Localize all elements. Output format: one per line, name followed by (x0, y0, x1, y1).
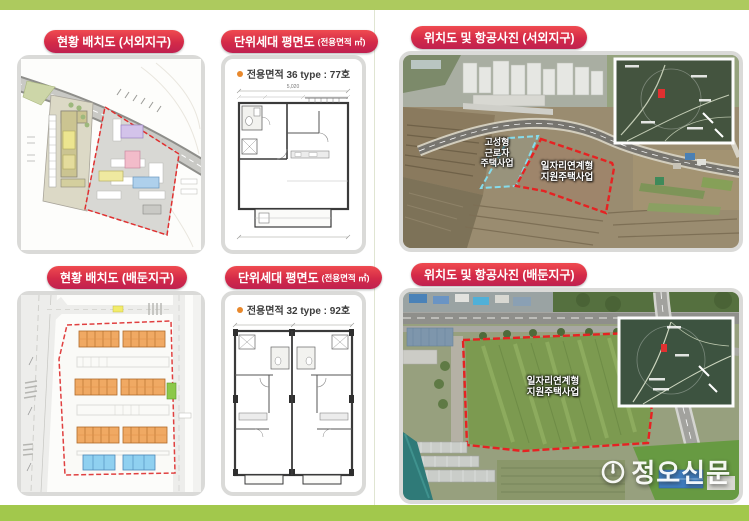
floor-plan-32-caption-row: 전용면적 32 type : 92호 (225, 302, 362, 317)
floor-plan-drawing-36: 5,020 (225, 81, 362, 247)
label-job-housing-baedun: 일자리연계형 지원주택사업 (505, 376, 601, 398)
badge-aerial-seooe: 위치도 및 항공사진 (서외지구) (411, 26, 587, 49)
site-plan-drawing-baedun (21, 295, 201, 492)
dimension-label: 5,020 (287, 84, 300, 90)
badge-unit-plan-top: 단위세대 평면도 (전용면적 ㎡) (221, 30, 378, 53)
watermark: 정오신문 (600, 453, 731, 490)
badge-label: 위치도 및 항공사진 (서외지구) (424, 29, 574, 46)
aerial-photo-seooe: 고성형 근로자 주택사업 일자리연계형 지원주택사업 (403, 55, 739, 248)
label-job-housing-seooe: 일자리연계형 지원주택사업 (519, 161, 615, 183)
badge-label: 현황 배치도 (서외지구) (57, 33, 171, 50)
bullet-icon (237, 307, 243, 313)
badge-unit-plan-bottom: 단위세대 평면도 (전용면적 ㎡) (225, 266, 382, 289)
badge-sublabel: (전용면적 ㎡) (318, 36, 366, 48)
panel-aerial-baedun: 일자리연계형 지원주택사업 정오신문 (399, 288, 743, 504)
top-green-band (0, 0, 749, 10)
brochure-page: 현황 배치도 (서외지구) 단위세대 평면도 (전용면적 ㎡) 위치도 및 항공… (0, 0, 749, 521)
badge-label: 위치도 및 항공사진 (배둔지구) (424, 266, 574, 283)
badge-label: 단위세대 평면도 (234, 33, 315, 50)
panel-site-plan-seooe (17, 55, 205, 254)
bullet-icon (237, 71, 243, 77)
badge-site-plan-seooe: 현황 배치도 (서외지구) (44, 30, 184, 53)
panel-floor-plan-32: 전용면적 32 type : 92호 (221, 291, 366, 496)
floor-plan-36-caption-row: 전용면적 36 type : 77호 (225, 66, 362, 81)
aerial-photo-baedun: 일자리연계형 지원주택사업 정오신문 (403, 292, 739, 500)
badge-sublabel: (전용면적 ㎡) (322, 272, 370, 284)
badge-site-plan-baedun: 현황 배치도 (배둔지구) (47, 266, 187, 289)
clock-icon (600, 459, 626, 485)
panel-site-plan-baedun (17, 291, 205, 496)
badge-aerial-baedun: 위치도 및 항공사진 (배둔지구) (411, 263, 587, 286)
aerial-photo-seooe-art (403, 55, 739, 248)
floor-plan-36-caption: 전용면적 36 type : 77호 (247, 66, 350, 81)
site-plan-drawing-seooe (21, 59, 201, 250)
panel-aerial-seooe: 고성형 근로자 주택사업 일자리연계형 지원주택사업 (399, 51, 743, 252)
bottom-green-band (0, 505, 749, 521)
badge-label: 단위세대 평면도 (238, 269, 319, 286)
inset-map-baedun (619, 318, 733, 406)
center-divider (374, 10, 375, 505)
panel-floor-plan-36: 전용면적 36 type : 77호 5,020 (221, 55, 366, 254)
badge-label: 현황 배치도 (배둔지구) (60, 269, 174, 286)
floor-plan-32-caption: 전용면적 32 type : 92호 (247, 302, 350, 317)
floor-plan-drawing-32 (225, 317, 362, 489)
inset-map-seooe (615, 59, 733, 143)
watermark-text: 정오신문 (631, 453, 731, 490)
